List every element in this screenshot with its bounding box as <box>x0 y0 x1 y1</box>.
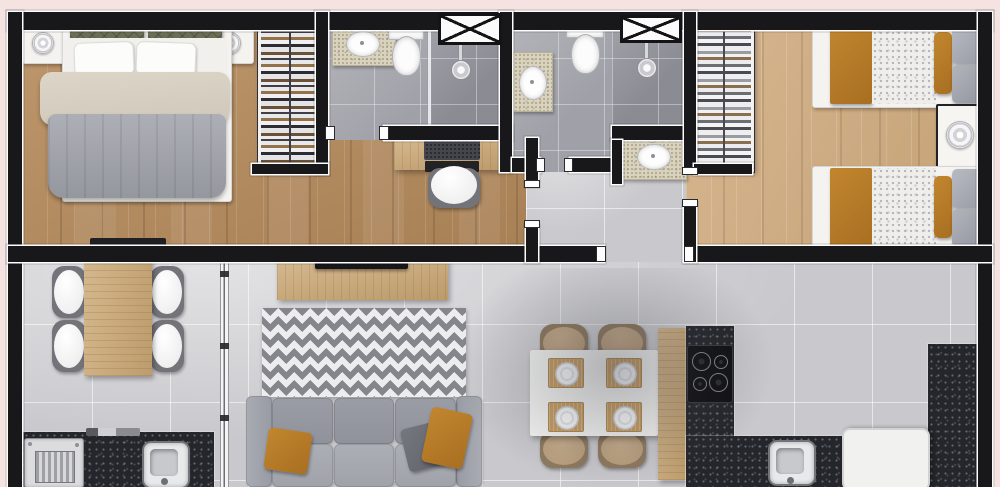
door-jamb <box>380 127 388 139</box>
knob <box>75 443 79 447</box>
wall-bath2-bottom-b <box>570 158 618 172</box>
desk-chair-seat <box>431 166 477 204</box>
door-jamb <box>685 247 693 261</box>
faucet <box>787 477 794 484</box>
sink-drain <box>530 80 534 84</box>
chair-seat <box>152 324 182 368</box>
dining-chair <box>150 266 184 318</box>
door-jamb <box>683 200 697 206</box>
blanket-foot <box>48 114 226 198</box>
sofa-seat-cushion <box>334 444 394 487</box>
shower-glass <box>428 14 431 138</box>
floor-plan <box>0 0 1000 487</box>
chair-seat <box>152 270 182 314</box>
door-jamb <box>525 181 539 187</box>
sliding-glass-door <box>220 258 229 487</box>
wall-nook-left <box>612 140 622 184</box>
shower-head <box>637 58 657 78</box>
door-jamb <box>525 221 539 227</box>
faucet-bar <box>86 428 140 436</box>
sink-drain <box>651 154 655 158</box>
accent-pillow <box>934 176 952 238</box>
door-jamb <box>326 127 334 139</box>
open-wardrobe <box>694 20 754 172</box>
single-bed <box>812 22 984 106</box>
wall-shower2-bottom <box>612 126 686 140</box>
table-lamp <box>946 121 974 149</box>
shower-head <box>451 60 471 80</box>
door-jamb <box>597 247 605 261</box>
wall-office-hall-b <box>526 226 538 262</box>
wall-bath1-left <box>316 12 328 174</box>
master-bed <box>62 22 230 200</box>
wall-wardrobe2-bottom <box>694 164 752 174</box>
table-lamp <box>32 32 54 54</box>
accent-pillow <box>934 32 952 94</box>
duvet <box>872 168 936 248</box>
open-wardrobe <box>258 22 322 172</box>
chair-seat <box>54 270 84 314</box>
laptop-keyboard <box>424 138 480 160</box>
wall-bedroom2-a <box>684 12 696 172</box>
wall-mid-left <box>8 246 604 262</box>
chevron-rug <box>262 308 466 397</box>
dining-chair <box>52 266 86 318</box>
single-bed <box>812 166 984 250</box>
dining-table <box>84 254 152 376</box>
door-jamb <box>565 159 572 171</box>
door-jamb <box>683 168 697 174</box>
kitchen-counter-right <box>928 344 984 487</box>
door-jamb <box>537 159 544 171</box>
ventilation-shaft-x-marker <box>438 13 502 45</box>
refrigerator <box>842 428 930 487</box>
wall-bath1-bottom <box>384 126 512 140</box>
floor-shading <box>460 268 770 487</box>
duvet <box>872 24 936 104</box>
utility-sink-basin <box>150 449 178 476</box>
faucet <box>161 478 168 485</box>
dining-chair <box>52 320 86 372</box>
wall-wardrobe-bottom <box>252 164 328 174</box>
bed-runner <box>830 168 872 248</box>
dining-chair <box>150 320 184 372</box>
desk-chair <box>428 168 480 208</box>
knob <box>28 442 32 446</box>
wall-mid-right <box>686 246 992 262</box>
washboard-ridges <box>35 451 75 483</box>
chair-seat <box>54 324 84 368</box>
sofa <box>246 396 482 487</box>
toilet-bowl <box>571 34 600 74</box>
sofa-back-cushion <box>334 398 394 444</box>
ventilation-shaft-x-marker <box>620 15 682 43</box>
throw-pillow <box>263 427 312 475</box>
washboard-sink <box>24 438 84 487</box>
kitchen-sink-basin <box>776 448 804 474</box>
bed-runner <box>830 24 872 104</box>
sink-drain <box>360 41 364 45</box>
toilet-bowl <box>392 36 421 76</box>
